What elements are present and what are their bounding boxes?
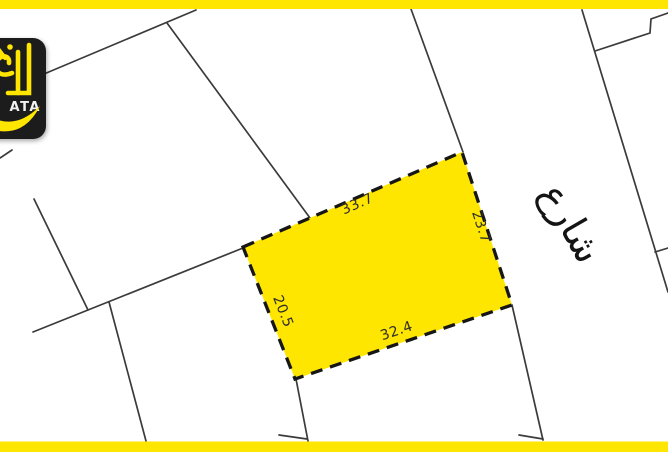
parcel-boundary-line — [109, 302, 146, 441]
parcel-boundary-line — [512, 305, 543, 440]
top-accent-bar — [0, 0, 668, 9]
parcel-boundary-line — [167, 23, 310, 218]
boundary-tick — [279, 435, 307, 439]
boundary-tick — [655, 248, 668, 252]
bottom-accent-bar — [0, 442, 668, 452]
logo-dot-icon — [7, 44, 13, 50]
street-label: شارع — [531, 175, 611, 270]
logo-text: ATA — [10, 100, 41, 115]
plot-map-image: 33.7 23.7 32.4 20.5 شارع ATA — [0, 0, 668, 452]
watermark-logo: ATA — [0, 38, 46, 139]
parcel-boundary-line — [296, 379, 308, 441]
parcel-boundary-line — [0, 150, 12, 158]
parcel-boundary-line — [411, 9, 463, 152]
boundary-tick — [519, 435, 543, 439]
plot-map-canvas: 33.7 23.7 32.4 20.5 شارع ATA — [0, 0, 668, 452]
parcel-boundary-line — [34, 199, 88, 310]
parcel-boundary-polyline — [595, 13, 668, 51]
